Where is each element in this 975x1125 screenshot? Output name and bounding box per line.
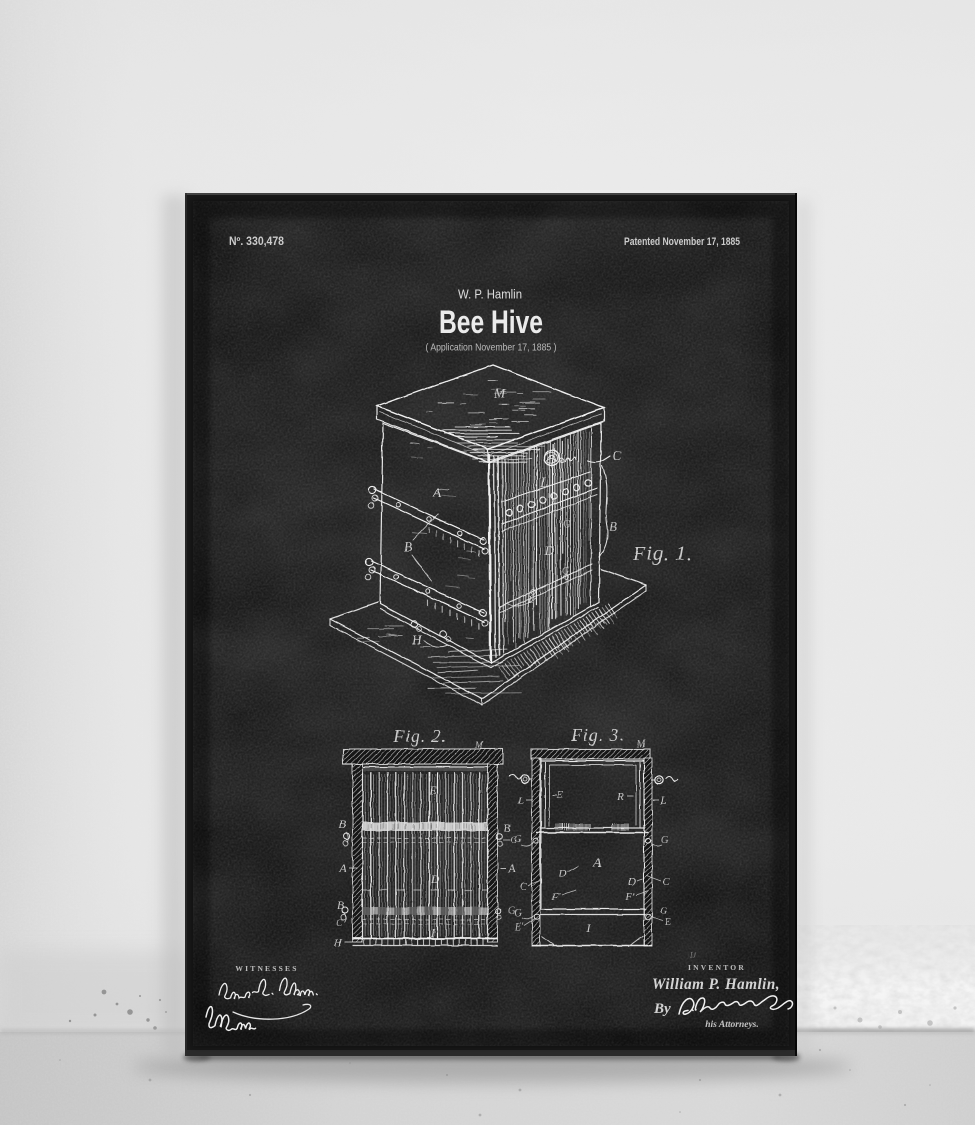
svg-text:W. P. Hamlin: W. P. Hamlin	[458, 287, 522, 302]
svg-text:WITNESSES: WITNESSES	[235, 964, 298, 973]
svg-text:E: E	[428, 783, 437, 797]
svg-text:F′: F′	[624, 891, 635, 903]
svg-text:By: By	[653, 1001, 671, 1017]
svg-text:Nº. 330,478: Nº. 330,478	[229, 236, 285, 248]
svg-text:B: B	[338, 817, 346, 831]
svg-text:G: G	[660, 906, 667, 917]
svg-text:A: A	[432, 486, 442, 501]
svg-text:C: C	[613, 448, 622, 463]
svg-text:Fig. 2.: Fig. 2.	[392, 726, 446, 746]
svg-text:B: B	[336, 898, 344, 912]
svg-text:R: R	[617, 791, 625, 803]
svg-text:INVENTOR: INVENTOR	[688, 963, 746, 972]
svg-text:his Attorneys.: his Attorneys.	[705, 1020, 759, 1030]
svg-text:Bee Hive: Bee Hive	[439, 304, 543, 340]
svg-text:L: L	[659, 795, 666, 807]
svg-text:L: L	[539, 476, 548, 491]
svg-text:A: A	[592, 855, 601, 870]
svg-text:A: A	[338, 861, 347, 875]
svg-text:F′: F′	[550, 891, 561, 903]
svg-text:B: B	[503, 821, 511, 835]
svg-text:L: L	[517, 795, 524, 807]
svg-text:G: G	[562, 566, 569, 577]
svg-text:D: D	[627, 876, 636, 888]
svg-text:B: B	[404, 539, 412, 554]
svg-text:Fig. 1.: Fig. 1.	[632, 543, 693, 565]
svg-text:M: M	[636, 739, 646, 750]
svg-text:E: E	[664, 917, 671, 928]
svg-text:H: H	[333, 937, 343, 949]
svg-text:G: G	[563, 519, 570, 530]
svg-text:C: C	[519, 881, 527, 893]
svg-text:C: C	[336, 918, 343, 929]
svg-text:D: D	[430, 872, 440, 886]
svg-text:C: C	[662, 876, 670, 888]
svg-text:G: G	[514, 834, 521, 845]
svg-text:D: D	[543, 543, 554, 558]
svg-text:B: B	[609, 519, 617, 534]
svg-text:E′: E′	[514, 922, 524, 933]
svg-text:M: M	[493, 387, 507, 402]
svg-text:Patented November 17, 1885: Patented November 17, 1885	[624, 236, 740, 248]
svg-text:G: G	[661, 835, 668, 846]
svg-text:D: D	[558, 868, 567, 880]
svg-text:A: A	[507, 861, 516, 875]
svg-text:( Application November 17, 18: ( Application November 17, 1885 )	[426, 342, 557, 354]
svg-text:William P. Hamlin,: William P. Hamlin,	[652, 976, 780, 993]
svg-text:H: H	[411, 632, 422, 647]
svg-text:G: G	[514, 908, 521, 919]
svg-text:Fig. 3.: Fig. 3.	[570, 725, 624, 745]
svg-text:IJ: IJ	[689, 951, 697, 960]
